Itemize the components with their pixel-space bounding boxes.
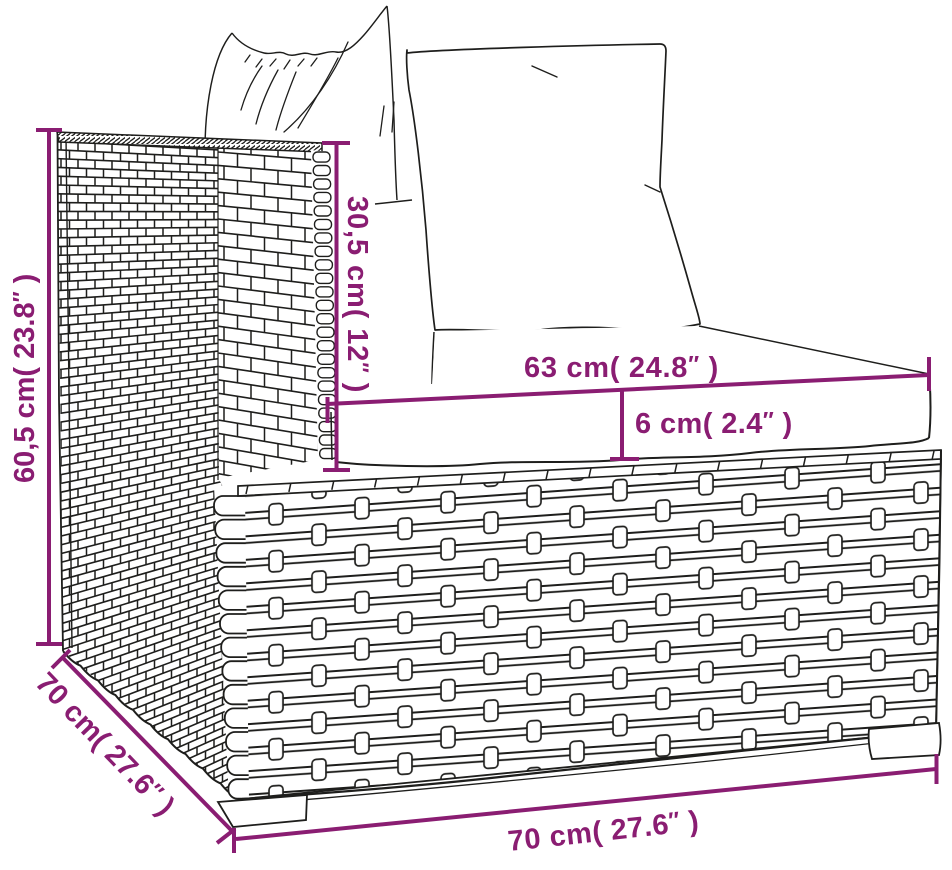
svg-text:60,5 cm( 23.8″ ): 60,5 cm( 23.8″ ) [8,274,41,483]
